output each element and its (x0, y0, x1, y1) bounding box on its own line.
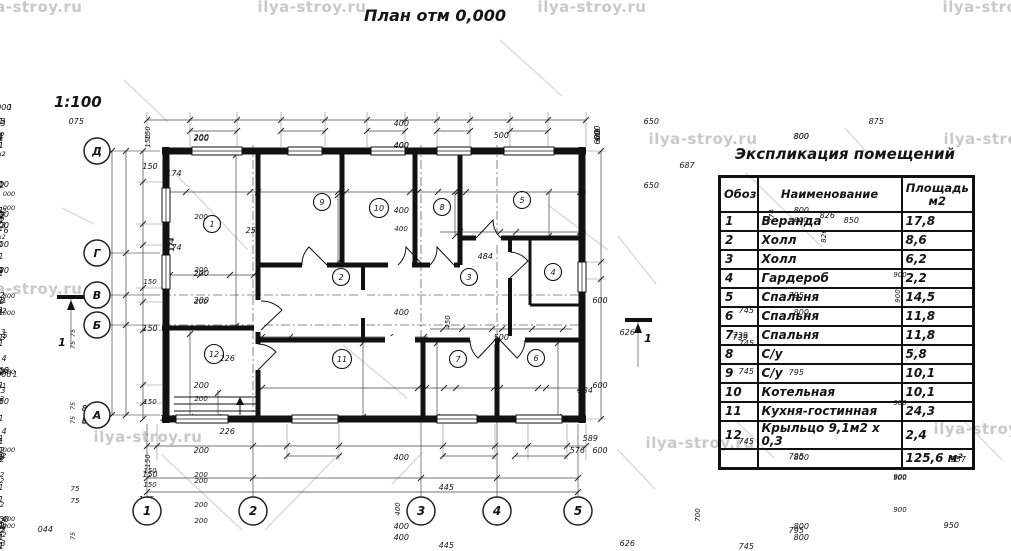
room-schedule: Экспликация помещений Обоз. Наименование… (718, 145, 972, 470)
svg-text:4 226: 4 226 (1, 354, 234, 363)
svg-text:В: В (93, 289, 101, 302)
svg-text:5: 5 (519, 196, 524, 205)
svg-text:2 200: 2 200 (0, 213, 208, 221)
svg-text:3: 3 (417, 504, 425, 518)
svg-text:75: 75 (69, 532, 77, 540)
svg-text:1 000: 1 000 (0, 240, 9, 249)
svg-text:1: 1 (143, 504, 151, 518)
svg-text:А: А (92, 409, 102, 422)
svg-text:1 075: 1 075 (0, 117, 84, 126)
svg-text:150: 150 (142, 162, 157, 171)
svg-text:6 252: 6 252 (3, 226, 260, 235)
svg-text:1 745: 1 745 (0, 542, 754, 551)
svg-text:1 400: 1 400 (0, 533, 409, 542)
col-header-area: Площадь м2 (902, 177, 974, 213)
svg-text:75: 75 (69, 341, 77, 349)
svg-text:4 226: 4 226 (1, 427, 234, 436)
svg-text:150: 150 (143, 467, 157, 475)
svg-text:3 875: 3 875 (0, 117, 883, 126)
svg-text:174: 174 (168, 237, 176, 250)
svg-text:11: 11 (337, 355, 347, 364)
svg-text:10: 10 (374, 204, 384, 213)
svg-text:8: 8 (439, 203, 444, 212)
svg-text:600: 600 (592, 381, 607, 390)
table-row: 11Кухня-гостинная24,3 (720, 402, 974, 421)
table-row: 3Холл6,2 (720, 250, 974, 269)
svg-text:2 795: 2 795 (0, 368, 804, 377)
svg-text:150: 150 (143, 398, 157, 406)
table-row: 4Гардероб2,2 (720, 269, 974, 288)
svg-text:1 800: 1 800 (0, 216, 808, 224)
schedule-body: 1Веранда17,82Холл8,63Холл6,24Гардероб2,2… (720, 212, 974, 469)
svg-text:4: 4 (550, 268, 555, 277)
table-row: 10Котельная10,1 (720, 383, 974, 402)
table-row: 6Спальня11,8 (720, 307, 974, 326)
svg-text:1 445: 1 445 (0, 541, 454, 550)
svg-text:1 650: 1 650 (0, 117, 659, 126)
svg-text:7: 7 (455, 355, 461, 364)
svg-text:75: 75 (69, 402, 77, 410)
schedule-header-row: Обоз. Наименование Площадь м2 (720, 177, 974, 213)
svg-text:9: 9 (319, 198, 324, 207)
windows-layer (162, 147, 586, 423)
svg-text:75: 75 (69, 416, 77, 424)
svg-text:2 650: 2 650 (0, 181, 659, 190)
table-row: 2Холл8,6 (720, 231, 974, 250)
schedule-title: Экспликация помещений (718, 145, 972, 163)
svg-text:1: 1 (644, 332, 652, 345)
svg-text:3: 3 (466, 273, 471, 282)
svg-text:ок2: ок2 (0, 234, 6, 241)
svg-text:150: 150 (143, 278, 157, 286)
svg-text:1 589: 1 589 (0, 434, 598, 443)
svg-text:3 584: 3 584 (0, 386, 592, 395)
svg-text:Д: Д (91, 145, 102, 158)
svg-text:900: 900 (893, 473, 907, 481)
svg-text:1 000: 1 000 (0, 397, 9, 406)
svg-text:1: 1 (58, 336, 66, 349)
svg-text:1 745: 1 745 (0, 437, 754, 446)
svg-text:2 200: 2 200 (0, 395, 208, 403)
svg-text:600: 600 (592, 296, 607, 305)
svg-text:174: 174 (166, 169, 181, 178)
svg-text:15 000: 15 000 (0, 370, 18, 379)
dimension-lines-layer (109, 117, 604, 495)
svg-text:1 745: 1 745 (0, 306, 754, 315)
table-row: 125,6 м² (720, 449, 974, 469)
svg-text:150: 150 (143, 481, 157, 489)
svg-text:1 800: 1 800 (0, 132, 809, 141)
svg-text:1 400: 1 400 (0, 308, 409, 317)
svg-text:1 200: 1 200 (0, 381, 209, 390)
svg-text:Г: Г (93, 247, 101, 260)
col-header-designation: Обоз. (720, 177, 758, 213)
svg-text:400: 400 (394, 502, 402, 516)
table-row: 5Спальня14,5 (720, 288, 974, 307)
svg-text:450: 450 (444, 315, 452, 329)
svg-text:900: 900 (893, 506, 907, 514)
svg-text:2: 2 (338, 273, 343, 282)
table-row: 12Крыльцо 9,1м2 х 0,32,4 (720, 421, 974, 449)
svg-text:75: 75 (71, 485, 80, 493)
table-row: 8С/у5,8 (720, 345, 974, 364)
svg-text:3 000: 3 000 (0, 221, 9, 230)
svg-text:2: 2 (249, 504, 257, 518)
svg-text:1: 1 (209, 220, 214, 229)
drawing-sheet: ilya-stroy.ruilya-stroy.ruilya-stroy.rui… (0, 0, 1011, 551)
svg-text:6: 6 (533, 354, 538, 363)
svg-text:75: 75 (71, 497, 80, 505)
svg-text:600: 600 (592, 446, 607, 455)
svg-text:2 200: 2 200 (0, 501, 208, 509)
svg-text:2 200: 2 200 (0, 266, 208, 274)
svg-text:1 745: 1 745 (0, 367, 754, 376)
svg-text:700: 700 (694, 508, 702, 522)
schedule-table: Обоз. Наименование Площадь м2 1Веранда17… (718, 175, 975, 470)
col-header-name: Наименование (758, 177, 902, 213)
svg-text:12: 12 (209, 350, 219, 359)
table-row: 7Спальня11,8 (720, 326, 974, 345)
svg-text:Б: Б (93, 319, 101, 332)
svg-text:2 795: 2 795 (0, 291, 804, 300)
svg-text:3 626: 3 626 (0, 539, 634, 548)
svg-text:5: 5 (574, 504, 582, 518)
svg-text:1 484: 1 484 (0, 252, 493, 261)
svg-text:10 000: 10 000 (0, 103, 13, 112)
svg-text:75: 75 (69, 329, 77, 337)
svg-text:2 500: 2 500 (0, 131, 509, 140)
svg-text:150: 150 (142, 324, 157, 333)
svg-text:4: 4 (492, 504, 501, 518)
svg-text:1 200: 1 200 (0, 446, 209, 455)
svg-text:1 200: 1 200 (0, 269, 209, 278)
table-row: 9С/у10,1 (720, 364, 974, 383)
svg-text:ок2: ок2 (0, 151, 6, 158)
svg-text:1 445: 1 445 (0, 483, 454, 492)
svg-text:600: 600 (593, 129, 602, 144)
svg-text:2 200: 2 200 (0, 517, 208, 525)
svg-text:150: 150 (144, 454, 152, 468)
svg-text:150: 150 (144, 126, 152, 140)
table-row: 1Веранда17,8 (720, 212, 974, 231)
svg-text:1 800: 1 800 (0, 132, 809, 141)
svg-text:h= 1 000: h= 1 000 (0, 190, 15, 198)
svg-text:687: 687 (679, 161, 695, 170)
